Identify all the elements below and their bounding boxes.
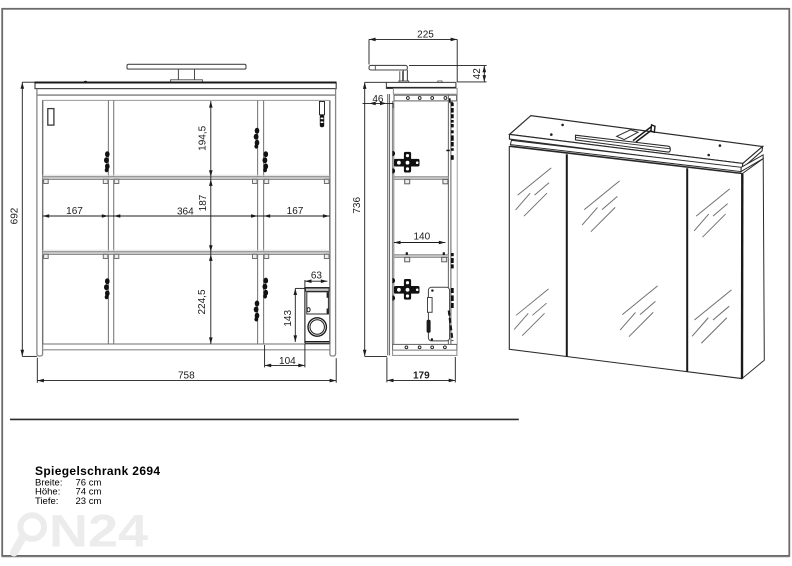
svg-text:224,5: 224,5: [197, 289, 208, 314]
svg-text:187: 187: [198, 194, 209, 211]
svg-text:104: 104: [279, 356, 296, 367]
svg-text:140: 140: [413, 231, 430, 242]
svg-text:46: 46: [372, 94, 384, 105]
svg-text:143: 143: [283, 310, 294, 327]
svg-text:63: 63: [311, 270, 323, 281]
svg-text:42: 42: [472, 68, 483, 80]
svg-text:167: 167: [287, 206, 304, 217]
svg-text:758: 758: [178, 371, 195, 382]
svg-text:167: 167: [66, 206, 83, 217]
svg-text:179: 179: [413, 370, 430, 381]
svg-text:N24: N24: [49, 506, 148, 557]
svg-text:Spiegelschrank 2694: Spiegelschrank 2694: [35, 464, 160, 478]
svg-text:364: 364: [177, 206, 194, 217]
svg-text:23 cm: 23 cm: [76, 496, 102, 507]
svg-text:194,5: 194,5: [197, 125, 208, 150]
svg-text:736: 736: [352, 197, 363, 214]
svg-text:225: 225: [417, 29, 434, 40]
svg-text:692: 692: [10, 207, 21, 224]
svg-text:Tiefe:: Tiefe:: [35, 496, 58, 507]
